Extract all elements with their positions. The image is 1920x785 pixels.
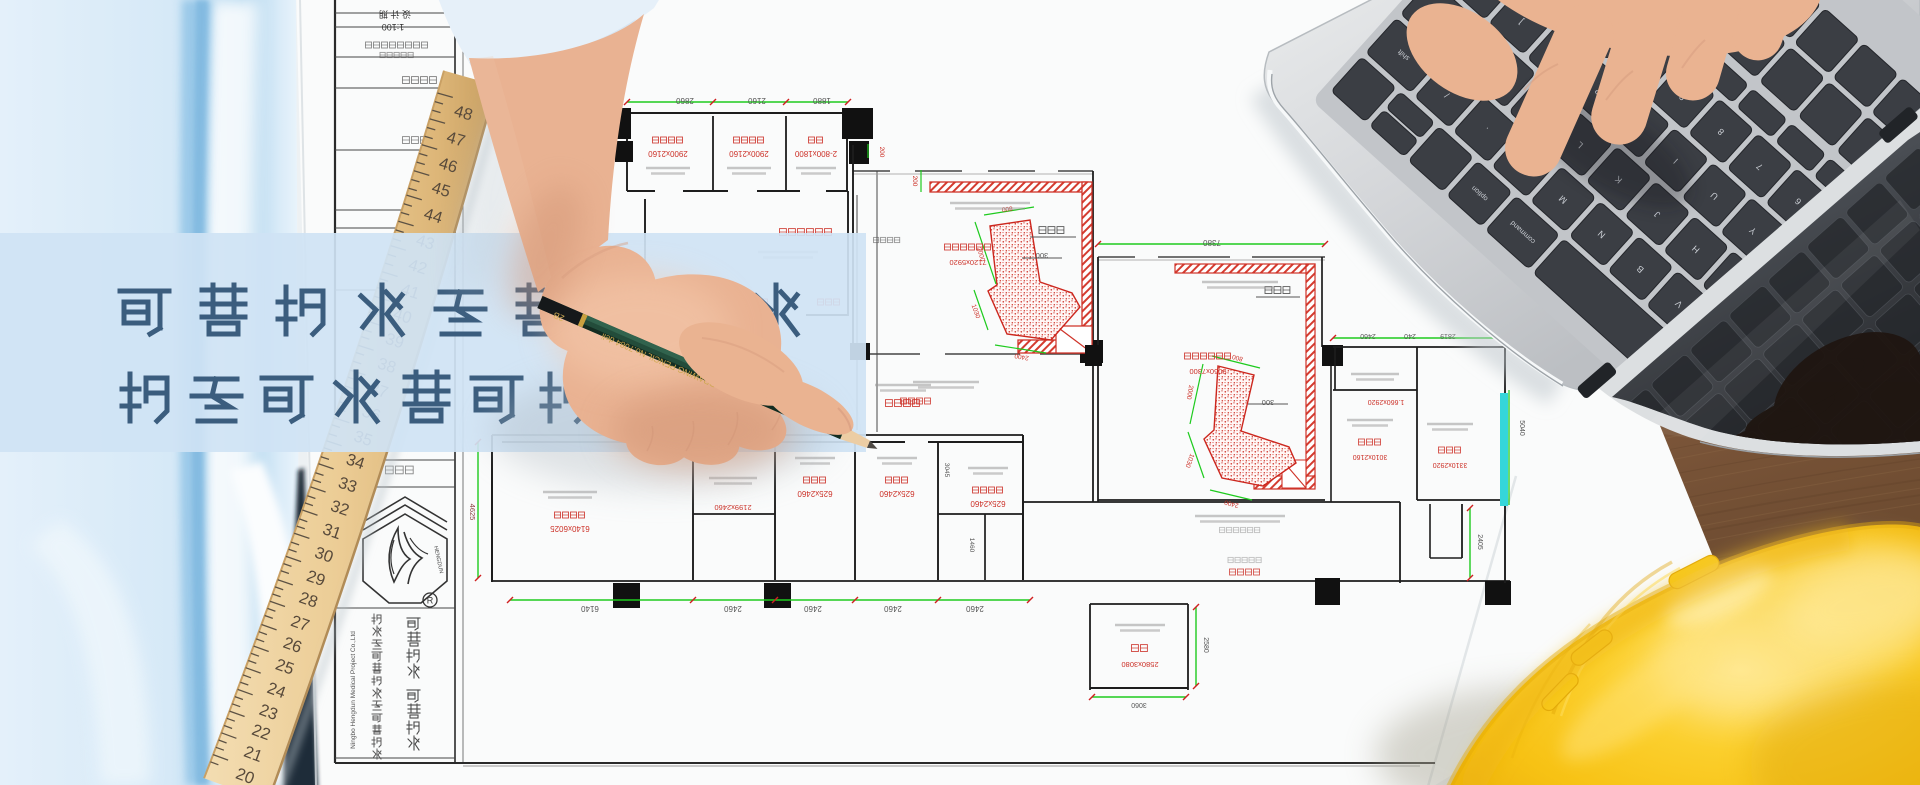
svg-text:2900x2160: 2900x2160 bbox=[648, 149, 688, 158]
svg-text:7380: 7380 bbox=[1203, 238, 1221, 247]
svg-text:Ningbo Hengdun Medical Project: Ningbo Hengdun Medical Project Co.,Ltd bbox=[350, 631, 357, 749]
svg-text:2860: 2860 bbox=[676, 96, 694, 105]
svg-text:2900x2160: 2900x2160 bbox=[729, 149, 769, 158]
svg-text:2160: 2160 bbox=[748, 96, 766, 105]
svg-text:200: 200 bbox=[911, 176, 918, 187]
svg-text:6140: 6140 bbox=[581, 604, 599, 613]
svg-text:625x2460: 625x2460 bbox=[879, 489, 915, 498]
svg-text:1:100: 1:100 bbox=[382, 22, 405, 32]
svg-text:1.660x2920: 1.660x2920 bbox=[1368, 398, 1405, 405]
svg-text:625x2460: 625x2460 bbox=[970, 499, 1006, 508]
svg-text:7120x5920: 7120x5920 bbox=[949, 258, 986, 267]
svg-text:设 计 期: 设 计 期 bbox=[379, 9, 411, 20]
svg-text:2460: 2460 bbox=[966, 604, 984, 613]
svg-text:3010x2160: 3010x2160 bbox=[1353, 453, 1388, 460]
svg-text:300: 300 bbox=[1262, 398, 1275, 407]
svg-text:9060x7300: 9060x7300 bbox=[1189, 367, 1226, 376]
svg-text:2460: 2460 bbox=[804, 604, 822, 613]
svg-text:5040: 5040 bbox=[1518, 420, 1525, 436]
svg-text:200: 200 bbox=[878, 147, 885, 158]
svg-text:6140x6025: 6140x6025 bbox=[550, 524, 590, 533]
svg-text:3045: 3045 bbox=[943, 463, 950, 478]
svg-text:2460: 2460 bbox=[724, 604, 742, 613]
svg-text:3060: 3060 bbox=[1131, 701, 1147, 708]
svg-text:1880: 1880 bbox=[813, 96, 831, 105]
svg-text:2460: 2460 bbox=[1360, 332, 1376, 339]
svg-text:2580: 2580 bbox=[1202, 637, 1209, 653]
svg-text:1460: 1460 bbox=[968, 538, 975, 553]
svg-text:2199x2460: 2199x2460 bbox=[714, 503, 751, 512]
svg-text:625x2460: 625x2460 bbox=[797, 489, 833, 498]
svg-text:3310x2920: 3310x2920 bbox=[1433, 461, 1468, 468]
svg-text:2405: 2405 bbox=[1476, 534, 1483, 550]
svg-text:240: 240 bbox=[1404, 332, 1416, 339]
svg-text:2460: 2460 bbox=[884, 604, 902, 613]
svg-text:300: 300 bbox=[1036, 251, 1049, 260]
svg-text:4625: 4625 bbox=[468, 504, 477, 521]
svg-text:2580x3080: 2580x3080 bbox=[1121, 660, 1158, 669]
svg-text:R: R bbox=[427, 596, 434, 606]
svg-text:2-800x1800: 2-800x1800 bbox=[794, 149, 837, 158]
